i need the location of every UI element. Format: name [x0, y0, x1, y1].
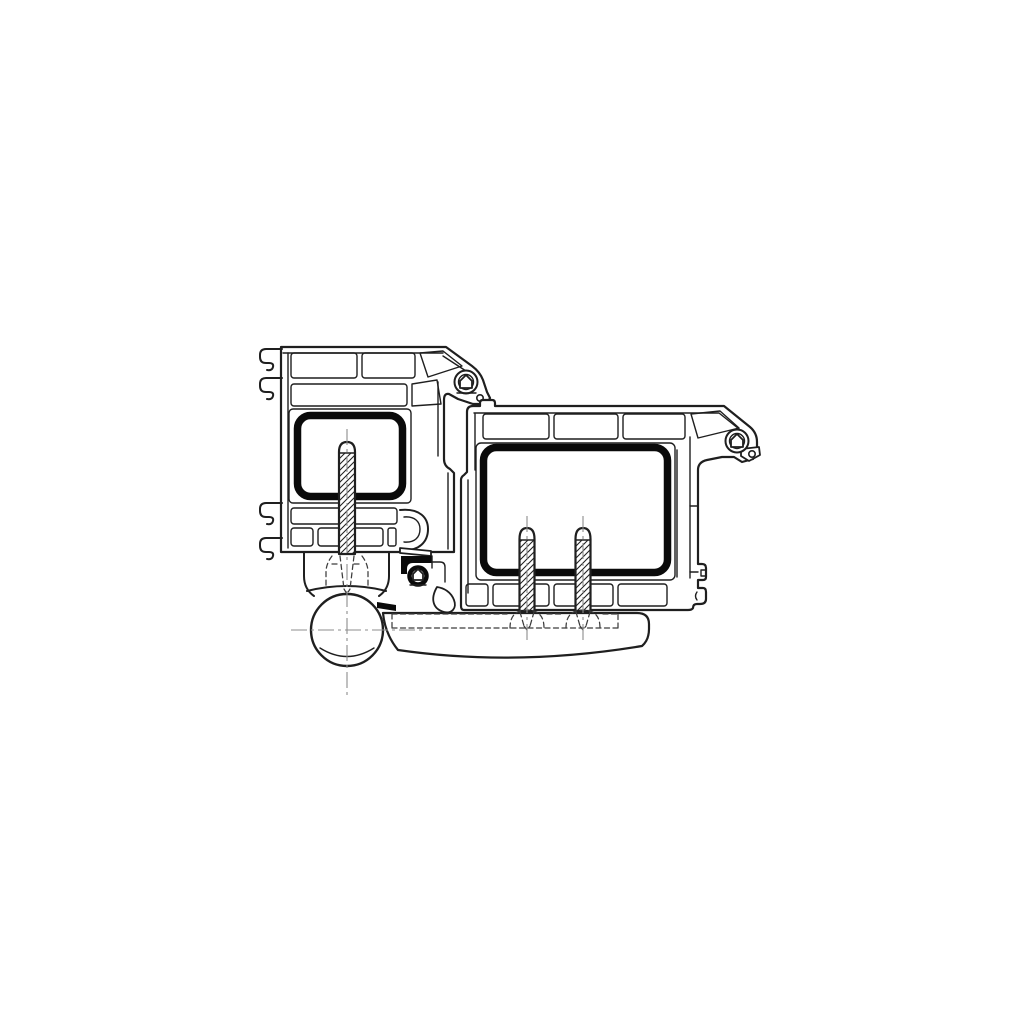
hinge-arm [383, 613, 649, 658]
seal-finger [433, 587, 455, 612]
hinge-clamp-wedge [377, 602, 396, 611]
technical-drawing-page [0, 0, 1024, 1024]
frame-clips [260, 349, 282, 559]
center-seal [400, 548, 445, 585]
hinge-cross-section-drawing [0, 0, 1024, 1024]
sash-profile [461, 400, 757, 610]
